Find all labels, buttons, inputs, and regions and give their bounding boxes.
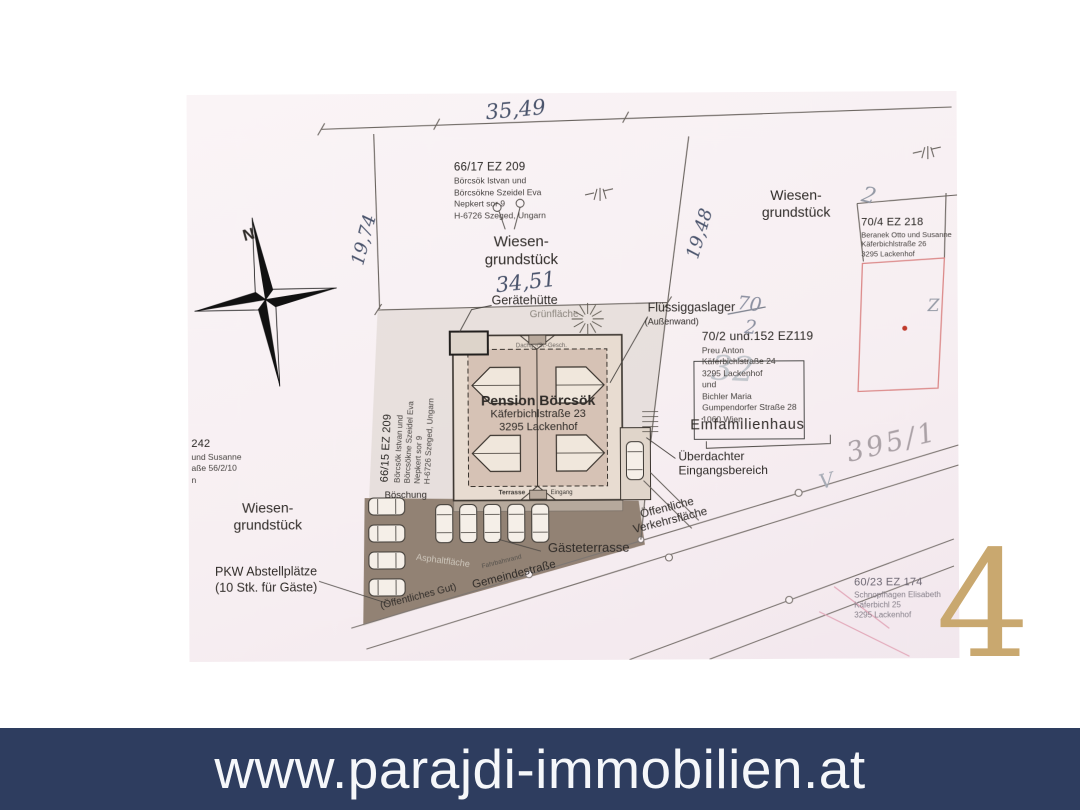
entry-note: Eingang: [551, 490, 573, 497]
parcel-702-block: 70/2 und.152 EZ119 Preu Anton Käferbichl…: [702, 330, 814, 426]
building-city: 3295 Lackenhof: [462, 421, 614, 434]
watermark-4: 4: [936, 531, 1030, 679]
site-plan-photo: 66/17 EZ 209 Börcsök Istvan und Börcsökn…: [187, 91, 960, 662]
building-street: Käferbichlstraße 23: [462, 408, 614, 421]
building-name: Pension Börcsök: [462, 392, 614, 409]
building-label: Pension Börcsök Käferbichlstraße 23 3295…: [462, 392, 614, 434]
mark-fraction-top: 70: [736, 292, 762, 316]
meadow-label-center: Wiesen- grundstück: [461, 233, 581, 270]
label-pkw: PKW Abstellplätze (10 Stk. für Gäste): [215, 563, 317, 596]
terrace-note: Terrasse: [499, 489, 526, 497]
label-fluessiggaslager: Flüssiggaslager: [648, 300, 736, 315]
meadow-label-right: Wiesen- grundstück: [741, 187, 851, 222]
mark-z: Z: [928, 296, 940, 316]
label-boeschung: Böschung: [385, 491, 427, 502]
label-ueberdachter: Überdachter Eingangsbereich: [678, 450, 768, 478]
parcel-id: 66/17 EZ 209: [454, 161, 546, 175]
parcel-6023-block: 60/23 EZ 174 Schnopfhagen Elisabeth Käfe…: [854, 576, 941, 620]
tool-shed: [450, 331, 488, 354]
label-aussenwand: (Außenwand): [645, 316, 699, 327]
mark-fraction-bottom: 2: [744, 316, 758, 339]
website-banner: www.parajdi-immobilien.at: [0, 728, 1080, 810]
parcel-6615-block: 66/15 EZ 209 Börcsök Istvan und Börcsökn…: [379, 396, 437, 485]
parcel-6617-block: 66/17 EZ 209 Börcsök Istvan und Börcsökn…: [454, 161, 546, 222]
parcel-left-block: 242 und Susanne aße 56/2/10 n: [191, 438, 241, 486]
meadow-label-left: Wiesen- grundstück: [213, 499, 323, 534]
parcel-704-block: 70/4 EZ 218 Beranek Otto und Susanne Käf…: [861, 216, 952, 259]
page: { "banner": { "url": "www.parajdi-immobi…: [0, 0, 1080, 810]
roof-note: Dachg.-/St.-Gesch.: [516, 343, 567, 350]
label-gaesteterrasse: Gästeterrasse: [548, 541, 630, 556]
label-einfamilienhaus: Einfamilienhaus: [690, 417, 804, 434]
label-gruenflaeche: Grünfläche: [530, 309, 579, 321]
website-url: www.parajdi-immobilien.at: [214, 737, 865, 801]
north-star-icon: [187, 206, 351, 398]
